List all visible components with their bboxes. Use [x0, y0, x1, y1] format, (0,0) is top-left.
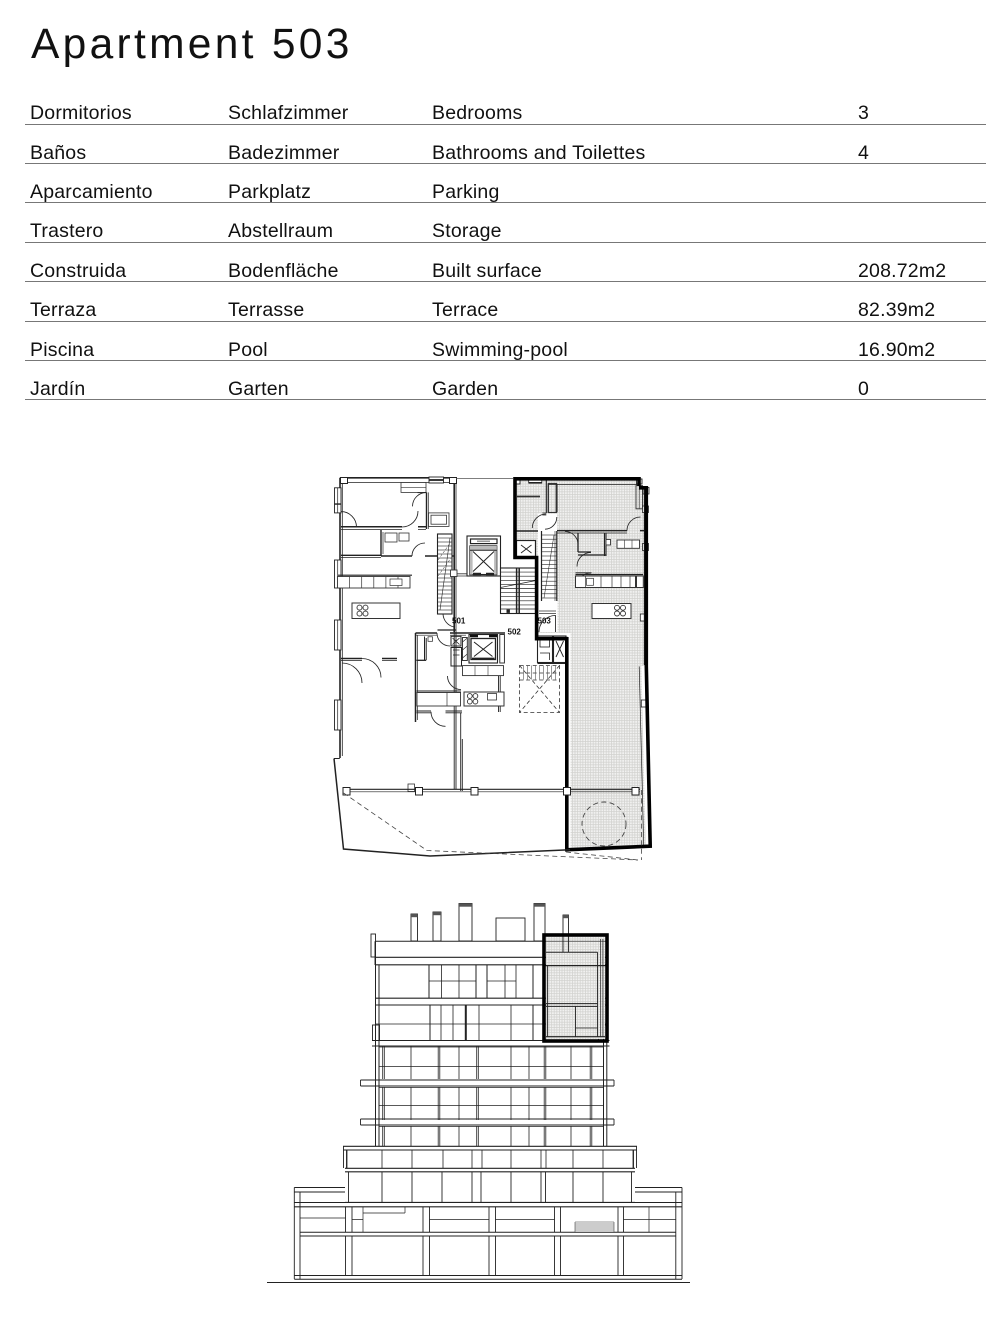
- svg-text:503: 503: [538, 617, 552, 626]
- svg-text:502: 502: [508, 628, 522, 637]
- svg-text:501: 501: [452, 617, 466, 626]
